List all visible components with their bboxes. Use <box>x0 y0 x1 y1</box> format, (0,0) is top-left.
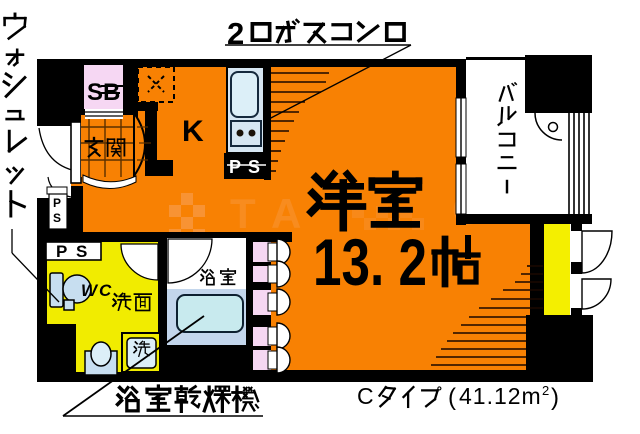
svg-text:P: P <box>53 196 61 210</box>
svg-text:S: S <box>53 211 61 225</box>
svg-text:S: S <box>87 79 103 106</box>
svg-text:P: P <box>229 157 241 177</box>
svg-text:W: W <box>81 281 99 300</box>
svg-text:S: S <box>248 157 260 177</box>
svg-text:2: 2 <box>542 383 549 398</box>
svg-text:K: K <box>182 115 204 148</box>
svg-text:41.12m: 41.12m <box>459 383 542 409</box>
svg-text:2: 2 <box>227 16 244 51</box>
svg-text:C: C <box>99 281 112 300</box>
svg-text:A: A <box>271 190 301 237</box>
svg-text:T: T <box>230 190 256 237</box>
svg-text:P: P <box>56 242 67 261</box>
svg-text:(: ( <box>448 384 456 411</box>
svg-text:S: S <box>76 242 87 261</box>
svg-text:13. 2: 13. 2 <box>313 225 427 299</box>
svg-text:C: C <box>357 383 374 409</box>
svg-text:): ) <box>551 384 559 411</box>
